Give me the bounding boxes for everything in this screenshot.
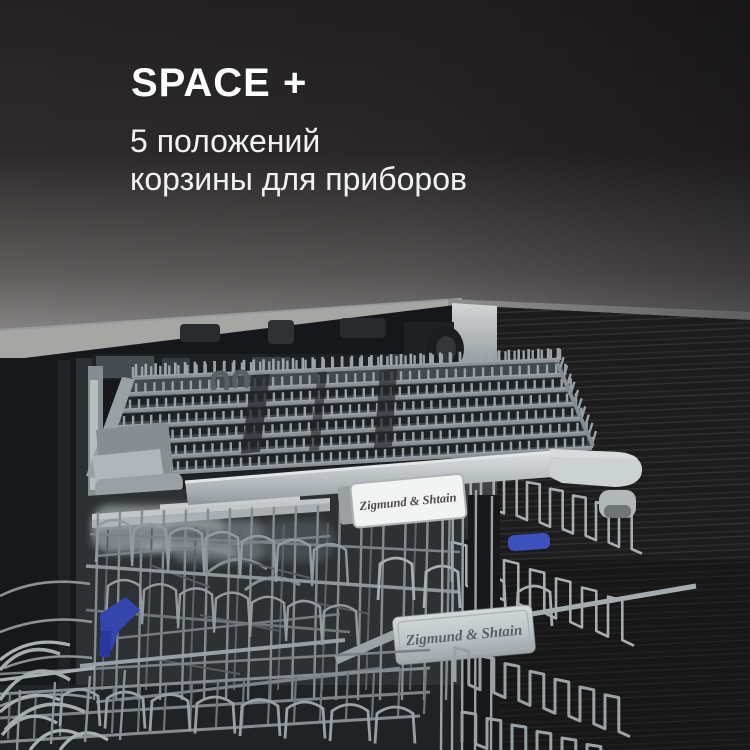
- svg-text:5 положений: 5 положений: [130, 123, 320, 159]
- svg-text:SPACE +: SPACE +: [131, 61, 307, 105]
- svg-text:корзины для приборов: корзины для приборов: [130, 161, 467, 197]
